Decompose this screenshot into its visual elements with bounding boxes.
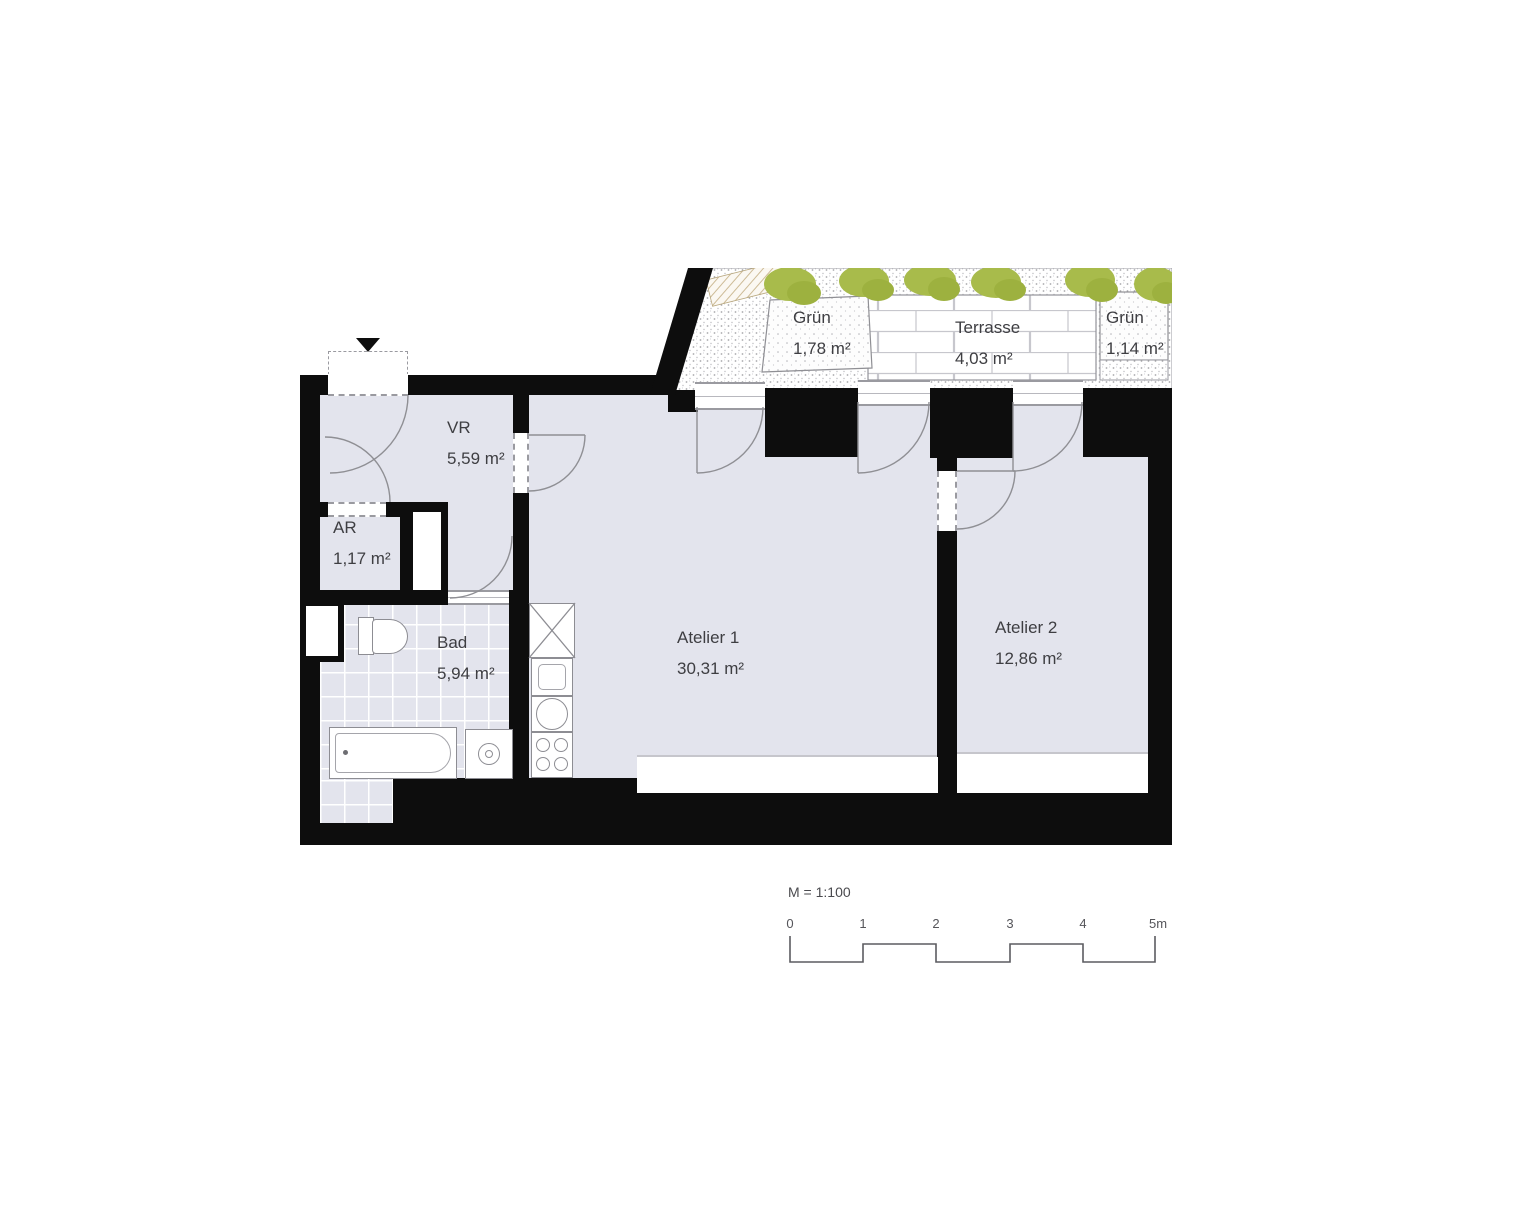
outdoor-area: 4,03 m² xyxy=(955,343,1020,374)
door-arc-entrance xyxy=(330,395,408,473)
door-arc-vr-atelier1 xyxy=(529,435,585,491)
room-area: 5,59 m² xyxy=(447,443,505,474)
scale-tick-5: 5m xyxy=(1149,916,1167,931)
room-name: Atelier 1 xyxy=(677,622,744,653)
room-label-atelier2: Atelier 2 12,86 m² xyxy=(995,612,1062,674)
scale-tick-4: 4 xyxy=(1079,916,1086,931)
door-arc-terrace-1 xyxy=(697,407,763,473)
room-area: 5,94 m² xyxy=(437,658,495,689)
door-arc-atelier1-atelier2 xyxy=(957,471,1015,529)
room-label-ar: AR 1,17 m² xyxy=(333,512,391,574)
scale-tick-3: 3 xyxy=(1006,916,1013,931)
overlay-svg xyxy=(0,0,1536,1229)
scale-tick-0: 0 xyxy=(786,916,793,931)
door-arc-terrace-3 xyxy=(1013,402,1082,471)
floorplan-canvas: VR 5,59 m² AR 1,17 m² Bad 5,94 m² Atelie… xyxy=(0,0,1536,1229)
room-name: VR xyxy=(447,412,505,443)
outdoor-area: 1,14 m² xyxy=(1106,333,1164,364)
door-arc-terrace-2 xyxy=(858,402,929,473)
door-arc-ar xyxy=(325,437,390,502)
room-name: AR xyxy=(333,512,391,543)
outdoor-label-gruen-right: Grün 1,14 m² xyxy=(1106,302,1164,364)
outdoor-name: Grün xyxy=(793,302,851,333)
room-label-atelier1: Atelier 1 30,31 m² xyxy=(677,622,744,684)
outdoor-label-terrasse: Terrasse 4,03 m² xyxy=(955,312,1020,374)
outdoor-name: Grün xyxy=(1106,302,1164,333)
wall-diagonal xyxy=(650,268,713,395)
scale-tick-2: 2 xyxy=(932,916,939,931)
door-arc-bad xyxy=(450,536,512,598)
scale-label: M = 1:100 xyxy=(788,884,851,900)
room-label-bad: Bad 5,94 m² xyxy=(437,627,495,689)
room-area: 30,31 m² xyxy=(677,653,744,684)
scale-bar xyxy=(790,936,1155,962)
outdoor-label-gruen-left: Grün 1,78 m² xyxy=(793,302,851,364)
outdoor-name: Terrasse xyxy=(955,312,1020,343)
room-label-vr: VR 5,59 m² xyxy=(447,412,505,474)
scale-tick-1: 1 xyxy=(859,916,866,931)
room-name: Atelier 2 xyxy=(995,612,1062,643)
room-area: 1,17 m² xyxy=(333,543,391,574)
outdoor-area: 1,78 m² xyxy=(793,333,851,364)
room-name: Bad xyxy=(437,627,495,658)
room-area: 12,86 m² xyxy=(995,643,1062,674)
